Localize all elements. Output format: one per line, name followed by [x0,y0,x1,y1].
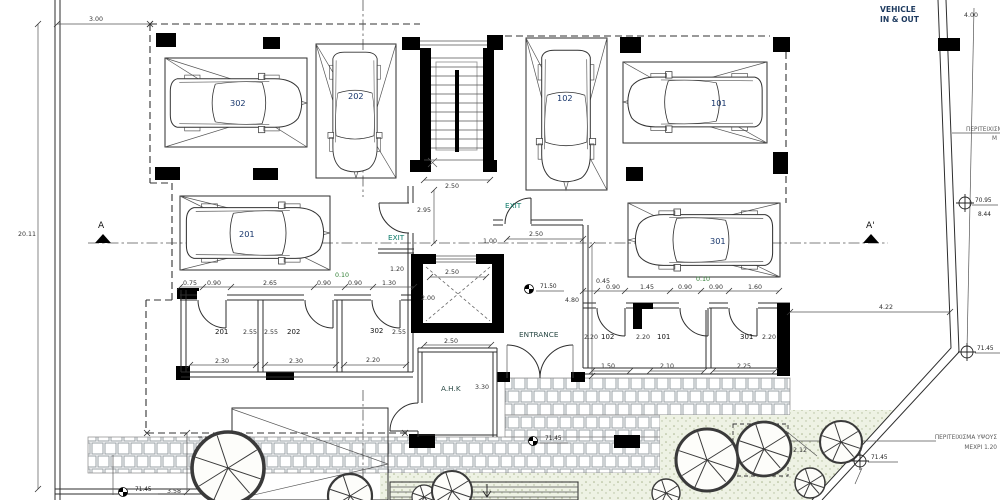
dim-102-depth: 2.20 [584,334,598,341]
perimeter-note-right-line2: Μ [992,136,997,142]
corridor-walls [378,198,583,253]
perimeter-note-right-line1: ΠΕΡΙΤΕΙΧΙΣΜ [966,127,1000,133]
entrance-double-door [497,345,585,382]
stair-core [410,41,497,172]
dim-strip-left-6: 0.90 [348,280,362,287]
stall-number-202: 202 [348,91,364,101]
dim-side-setback: 4.22 [879,304,893,311]
room-label-301: 301 [740,333,753,341]
dim-corridor-top: 2.50 [529,231,543,238]
dim-strip-right-2: 0.90 [606,284,620,291]
dim-strip-right-3: 1.45 [640,284,654,291]
dim-302-width: 2.20 [366,357,380,364]
stall-102 [526,38,607,190]
dim-201-depth: 2.55 [243,329,257,336]
dim-ahk-width: 2.50 [444,338,458,345]
level-garden: 71.45 [871,455,888,461]
dim-strip-right-4: 0.90 [678,284,692,291]
dim-wall-offset: 2.12 [793,447,807,454]
perimeter-note-br-line1: ΠΕΡΙΤΕΙΧΙΣΜΑ ΥΨΟΥΣ [935,435,998,441]
exit-label-top: EXIT [505,201,522,210]
section-marker-a: A [98,221,105,231]
dim-elevator-width: 2.50 [445,269,459,276]
dim-plot-height: 20.11 [18,231,36,238]
stall-number-201: 201 [239,229,255,239]
dim-strip-left-1: 0.75 [183,280,197,287]
dim-strip-right-5: 0.10 [696,276,710,283]
dim-strip-left-2: 0.90 [207,280,221,287]
floor-plan-drawing: 302 202 102 101 201 301 ♿ [0,0,1000,500]
dim-front-setback: 3.00 [89,16,103,23]
level-bench-bottom: 8.44 [978,212,991,218]
dim-201-width: 2.30 [215,358,229,365]
level-bottom-left: 71.45 [135,487,152,493]
room-label-201: 201 [215,328,228,336]
level-walkway: 71.45 [545,436,562,442]
dim-door: 1.00 [483,238,497,245]
dim-strip-left-7: 1.30 [382,280,396,287]
stall-202 [316,44,396,178]
floor-plan-canvas: 302 202 102 101 201 301 ♿ [0,0,1000,500]
room-label-202: 202 [287,328,300,336]
dim-strip-left-5: 0.10 [335,272,349,279]
dim-strip-right-6: 0.90 [709,284,723,291]
dim-101-width: 2.10 [660,363,674,370]
dim-strip-right: 0.45 0.90 1.45 0.90 0.10 0.90 1.60 [580,276,782,294]
elevator-shaft: 2.50 2.00 [411,252,504,333]
dim-stair-width: 2.50 [445,183,459,190]
dim-strip-left-3: 2.65 [263,280,277,287]
stall-number-101: 101 [711,98,727,108]
entrance-label: ENTRANCE [519,330,559,339]
room-label-102: 102 [601,333,614,341]
dim-elevator-depth: 2.00 [421,295,435,302]
vehicle-in-out-line2: IN & OUT [880,15,920,24]
dim-corridor-length: 4.80 [565,297,579,304]
dim-ahk-height: 3.30 [475,384,489,391]
dim-102-width: 1.50 [601,363,615,370]
level-entry: 71.50 [540,284,557,290]
parking-stalls: 302 202 102 101 201 301 [165,38,780,277]
vehicle-in-out-line1: VEHICLE [880,5,916,14]
section-marker-a-prime: A' [866,221,875,231]
dim-301-width: 2.25 [737,363,751,370]
dim-301-depth: 2.20 [762,334,776,341]
dim-driveway: 4.00 [964,12,978,19]
dim-202-width: 2.30 [289,358,303,365]
dim-ramp-width: 3.58 [167,488,181,495]
exit-label-left: EXIT [388,233,405,242]
stall-number-302: 302 [230,98,246,108]
stall-301 [628,203,780,277]
dim-302-depth: 2.55 [392,329,406,336]
dim-101-depth: 2.20 [636,334,650,341]
stall-number-301: 301 [710,236,726,246]
level-bench-top: 70.95 [975,198,992,204]
dim-stair-lobby: 2.95 [417,207,431,214]
level-right-edge: 71.45 [977,346,994,352]
ahk-room: A.H.K 3.30 2.50 [390,338,497,437]
room-label-101: 101 [657,333,670,341]
dim-strip-right-7: 1.60 [748,284,762,291]
stall-201 [180,196,330,270]
dim-exit-jamb: 1.20 [390,266,404,273]
stall-101 [623,62,767,143]
dim-strip-left-4: 0.90 [317,280,331,287]
dim-202-depth: 2.55 [264,329,278,336]
stall-number-102: 102 [557,93,573,103]
ahk-label: A.H.K [441,384,461,393]
perimeter-note-br-line2: ΜΕΧΡΙ 1.20 [964,445,997,451]
room-label-302: 302 [370,327,383,335]
